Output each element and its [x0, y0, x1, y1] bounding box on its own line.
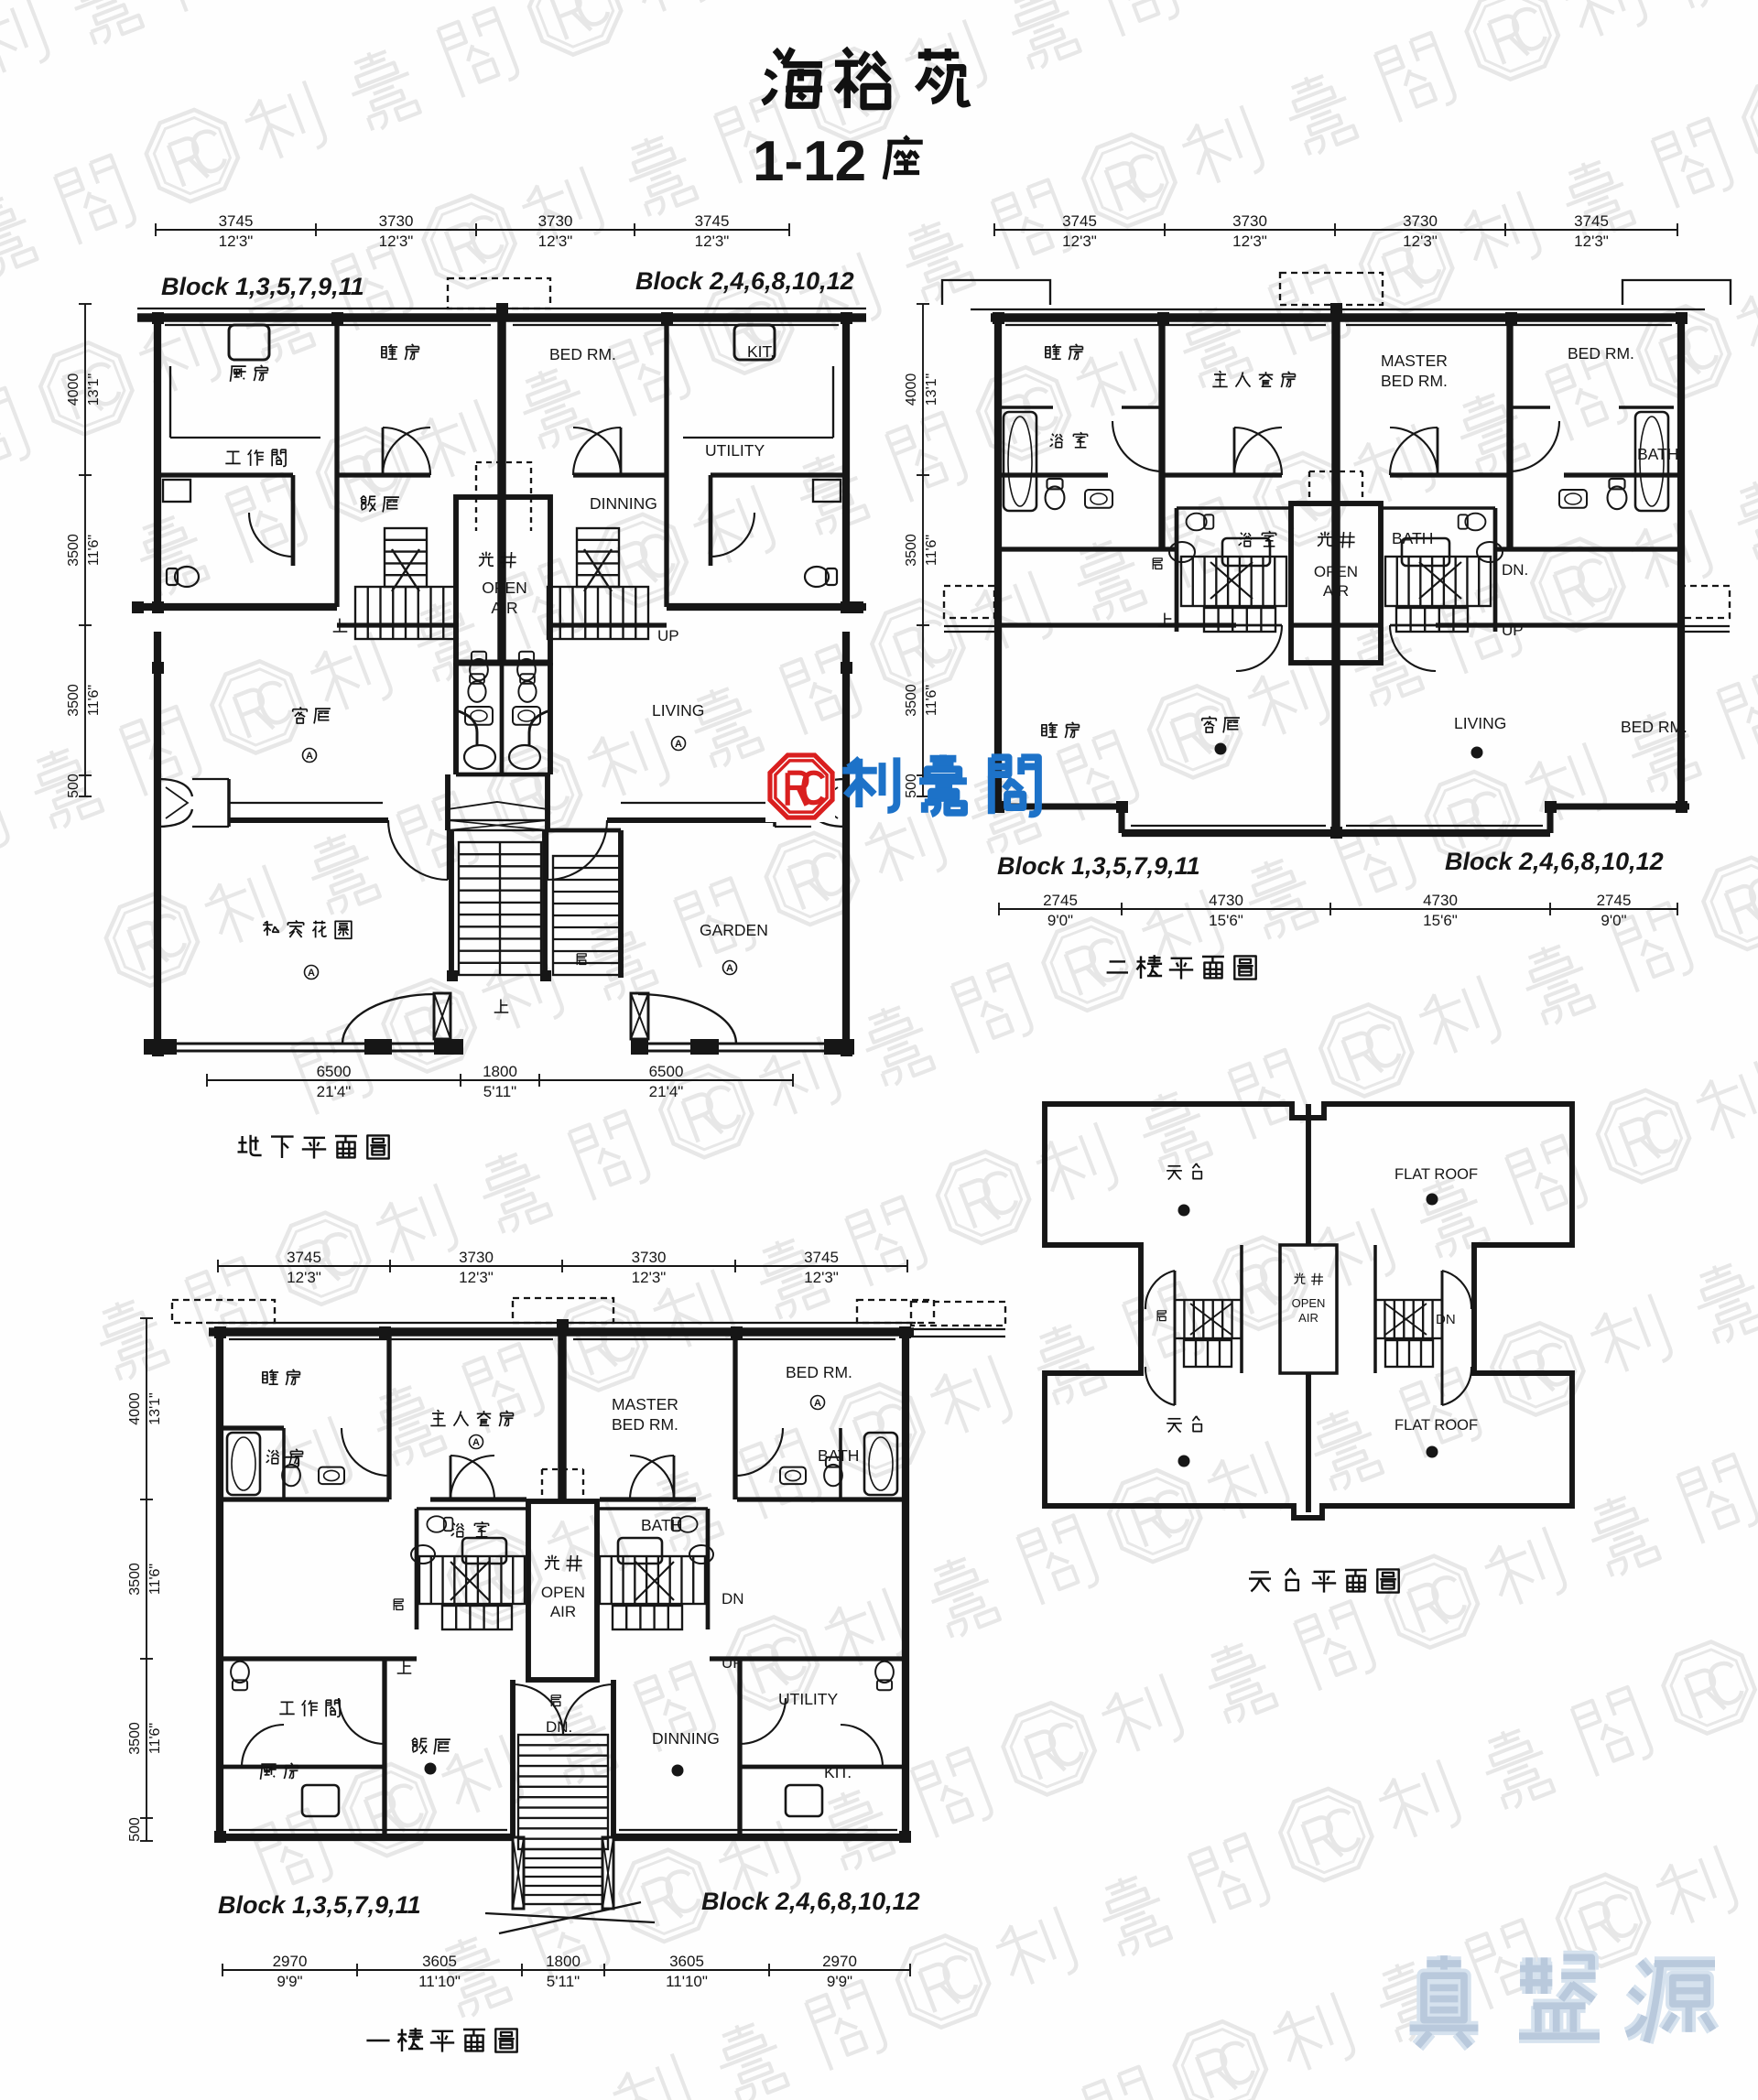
svg-text:4730: 4730: [1423, 892, 1458, 909]
svg-text:4000: 4000: [904, 373, 919, 406]
svg-text:DN.: DN.: [1502, 561, 1528, 579]
svg-text:LIVING: LIVING: [1454, 714, 1506, 732]
svg-text:12'3": 12'3": [219, 233, 254, 250]
svg-text:4730: 4730: [1209, 892, 1243, 909]
svg-text:AIR: AIR: [550, 1603, 576, 1620]
svg-text:3500: 3500: [66, 534, 81, 567]
svg-text:DINNING: DINNING: [652, 1729, 720, 1748]
svg-text:A: A: [308, 968, 315, 979]
svg-text:3745: 3745: [219, 212, 254, 230]
svg-text:OPEN: OPEN: [1314, 563, 1358, 580]
svg-text:OPEN: OPEN: [1292, 1296, 1326, 1310]
svg-text:AIR: AIR: [1323, 582, 1349, 600]
svg-text:3605: 3605: [669, 1953, 704, 1970]
svg-text:3730: 3730: [379, 212, 414, 230]
svg-text:BED RM.: BED RM.: [1621, 718, 1687, 736]
svg-text:A: A: [306, 751, 313, 762]
svg-text:BATH: BATH: [818, 1446, 859, 1465]
svg-text:1800: 1800: [546, 1953, 581, 1970]
svg-text:9'0": 9'0": [1047, 912, 1073, 929]
svg-text:13'1": 13'1": [86, 373, 102, 406]
svg-text:Block 2,4,6,8,10,12: Block 2,4,6,8,10,12: [701, 1888, 920, 1915]
svg-text:DN: DN: [722, 1590, 744, 1607]
svg-text:12'3": 12'3": [1232, 233, 1267, 250]
svg-text:DN.: DN.: [546, 1718, 572, 1736]
svg-text:12'3": 12'3": [538, 233, 573, 250]
svg-text:Block 1,3,5,7,9,11: Block 1,3,5,7,9,11: [218, 1891, 421, 1919]
svg-text:11'6": 11'6": [86, 535, 102, 566]
svg-text:GARDEN: GARDEN: [700, 921, 768, 939]
svg-text:AIR: AIR: [1298, 1311, 1318, 1325]
svg-text:3730: 3730: [459, 1249, 494, 1266]
svg-text:11'6": 11'6": [86, 685, 102, 716]
svg-text:3745: 3745: [695, 212, 730, 230]
svg-text:A: A: [675, 739, 682, 750]
svg-text:BATH: BATH: [641, 1516, 682, 1534]
svg-text:6500: 6500: [317, 1063, 352, 1080]
svg-text:UTILITY: UTILITY: [778, 1690, 838, 1708]
svg-text:13'1": 13'1": [147, 1392, 163, 1424]
svg-text:11'6": 11'6": [924, 535, 939, 566]
svg-text:MASTER: MASTER: [1381, 352, 1448, 370]
svg-text:OPEN: OPEN: [482, 579, 527, 597]
svg-text:3745: 3745: [287, 1249, 321, 1266]
svg-text:21'4": 21'4": [649, 1083, 684, 1100]
svg-text:2745: 2745: [1043, 892, 1078, 909]
svg-text:3730: 3730: [538, 212, 573, 230]
svg-text:21'4": 21'4": [317, 1083, 352, 1100]
svg-text:AIR: AIR: [491, 599, 517, 617]
svg-text:FLAT ROOF: FLAT ROOF: [1394, 1417, 1478, 1434]
svg-text:DN: DN: [1436, 1312, 1456, 1327]
svg-text:BATH: BATH: [1637, 445, 1678, 463]
svg-text:MASTER: MASTER: [612, 1395, 678, 1413]
svg-text:3500: 3500: [127, 1722, 143, 1755]
svg-text:12'3": 12'3": [1403, 233, 1438, 250]
svg-text:9'9": 9'9": [277, 1973, 302, 1990]
svg-text:BATH: BATH: [1392, 529, 1433, 547]
svg-text:15'6": 15'6": [1209, 912, 1243, 929]
svg-text:BED RM.: BED RM.: [612, 1415, 678, 1434]
svg-text:3745: 3745: [1062, 212, 1097, 230]
svg-text:3500: 3500: [904, 684, 919, 717]
svg-text:DINNING: DINNING: [590, 494, 657, 513]
svg-text:1800: 1800: [483, 1063, 517, 1080]
svg-text:11'6": 11'6": [147, 1723, 163, 1754]
svg-text:A: A: [814, 1398, 821, 1409]
svg-text:5'11": 5'11": [547, 1973, 580, 1990]
svg-text:13'1": 13'1": [924, 373, 939, 406]
svg-text:11'10": 11'10": [418, 1973, 461, 1990]
svg-text:A: A: [726, 963, 733, 974]
svg-text:3730: 3730: [1403, 212, 1438, 230]
svg-text:12'3": 12'3": [379, 233, 414, 250]
svg-text:3730: 3730: [632, 1249, 667, 1266]
svg-text:500: 500: [66, 774, 81, 798]
svg-text:11'10": 11'10": [666, 1973, 708, 1990]
svg-text:Block 2,4,6,8,10,12: Block 2,4,6,8,10,12: [1445, 848, 1664, 875]
svg-text:BED RM.: BED RM.: [1381, 372, 1448, 390]
svg-text:500: 500: [127, 1817, 143, 1842]
svg-text:FLAT ROOF: FLAT ROOF: [1394, 1166, 1478, 1183]
svg-text:UP: UP: [657, 627, 679, 644]
svg-text:11'6": 11'6": [924, 685, 939, 716]
svg-text:12'3": 12'3": [1574, 233, 1609, 250]
svg-text:3745: 3745: [1574, 212, 1609, 230]
svg-text:12'3": 12'3": [1062, 233, 1097, 250]
svg-text:3745: 3745: [804, 1249, 839, 1266]
svg-text:12'3": 12'3": [459, 1269, 494, 1286]
svg-text:500: 500: [904, 774, 919, 798]
svg-text:KIT.: KIT.: [824, 1763, 852, 1781]
svg-text:3730: 3730: [1232, 212, 1267, 230]
svg-text:BED RM.: BED RM.: [1568, 344, 1634, 363]
svg-text:12'3": 12'3": [632, 1269, 667, 1286]
svg-text:1-12: 1-12: [753, 130, 866, 193]
svg-text:3500: 3500: [66, 684, 81, 717]
svg-text:12'3": 12'3": [695, 233, 730, 250]
svg-text:LIVING: LIVING: [652, 701, 704, 720]
svg-text:9'0": 9'0": [1601, 912, 1626, 929]
svg-text:UTILITY: UTILITY: [705, 441, 765, 460]
svg-text:6500: 6500: [649, 1063, 684, 1080]
svg-text:12'3": 12'3": [804, 1269, 839, 1286]
svg-text:UP: UP: [1502, 622, 1524, 639]
svg-text:2970: 2970: [822, 1953, 857, 1970]
svg-text:Block 1,3,5,7,9,11: Block 1,3,5,7,9,11: [161, 273, 364, 300]
svg-text:Block 2,4,6,8,10,12: Block 2,4,6,8,10,12: [635, 267, 854, 295]
svg-text:3500: 3500: [127, 1563, 143, 1596]
svg-text:5'11": 5'11": [483, 1083, 516, 1100]
svg-text:KIT.: KIT.: [747, 342, 775, 361]
svg-text:Block 1,3,5,7,9,11: Block 1,3,5,7,9,11: [997, 852, 1200, 880]
svg-text:BED RM.: BED RM.: [786, 1363, 852, 1381]
svg-text:A: A: [472, 1437, 480, 1448]
svg-text:11'6": 11'6": [147, 1564, 163, 1595]
svg-text:9'9": 9'9": [827, 1973, 852, 1990]
svg-text:OPEN: OPEN: [541, 1584, 585, 1601]
svg-text:UP: UP: [722, 1654, 743, 1672]
svg-text:4000: 4000: [66, 373, 81, 406]
svg-text:2745: 2745: [1597, 892, 1632, 909]
svg-text:BED RM.: BED RM.: [549, 345, 616, 363]
svg-text:3605: 3605: [422, 1953, 457, 1970]
svg-text:2970: 2970: [273, 1953, 308, 1970]
svg-text:12'3": 12'3": [287, 1269, 321, 1286]
svg-text:3500: 3500: [904, 534, 919, 567]
svg-text:15'6": 15'6": [1423, 912, 1458, 929]
svg-text:4000: 4000: [127, 1392, 143, 1425]
